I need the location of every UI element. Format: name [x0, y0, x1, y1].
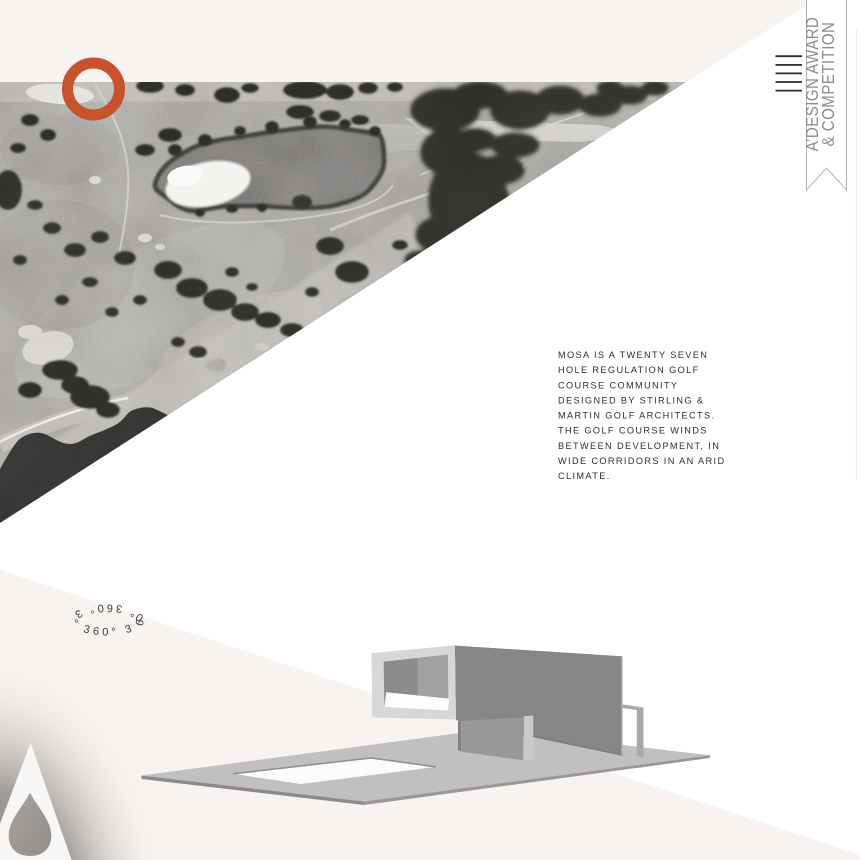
svg-text:COURSE COMMUNITY: COURSE COMMUNITY: [558, 380, 678, 390]
svg-text:DESIGNED BY STIRLING &: DESIGNED BY STIRLING &: [558, 395, 704, 405]
svg-text:WIDE CORRIDORS IN AN ARID: WIDE CORRIDORS IN AN ARID: [558, 456, 725, 466]
svg-text:CLIMATE.: CLIMATE.: [558, 471, 611, 481]
svg-text:THE GOLF COURSE WINDS: THE GOLF COURSE WINDS: [558, 426, 708, 436]
svg-text:& COMPETITION: & COMPETITION: [819, 22, 838, 147]
svg-text:MOSA IS A TWENTY SEVEN: MOSA IS A TWENTY SEVEN: [558, 350, 708, 360]
svg-text:HOLE REGULATION GOLF: HOLE REGULATION GOLF: [558, 365, 700, 375]
svg-text:MARTIN GOLF ARCHITECTS.: MARTIN GOLF ARCHITECTS.: [558, 411, 715, 421]
svg-text:BETWEEN DEVELOPMENT, IN: BETWEEN DEVELOPMENT, IN: [558, 441, 720, 451]
